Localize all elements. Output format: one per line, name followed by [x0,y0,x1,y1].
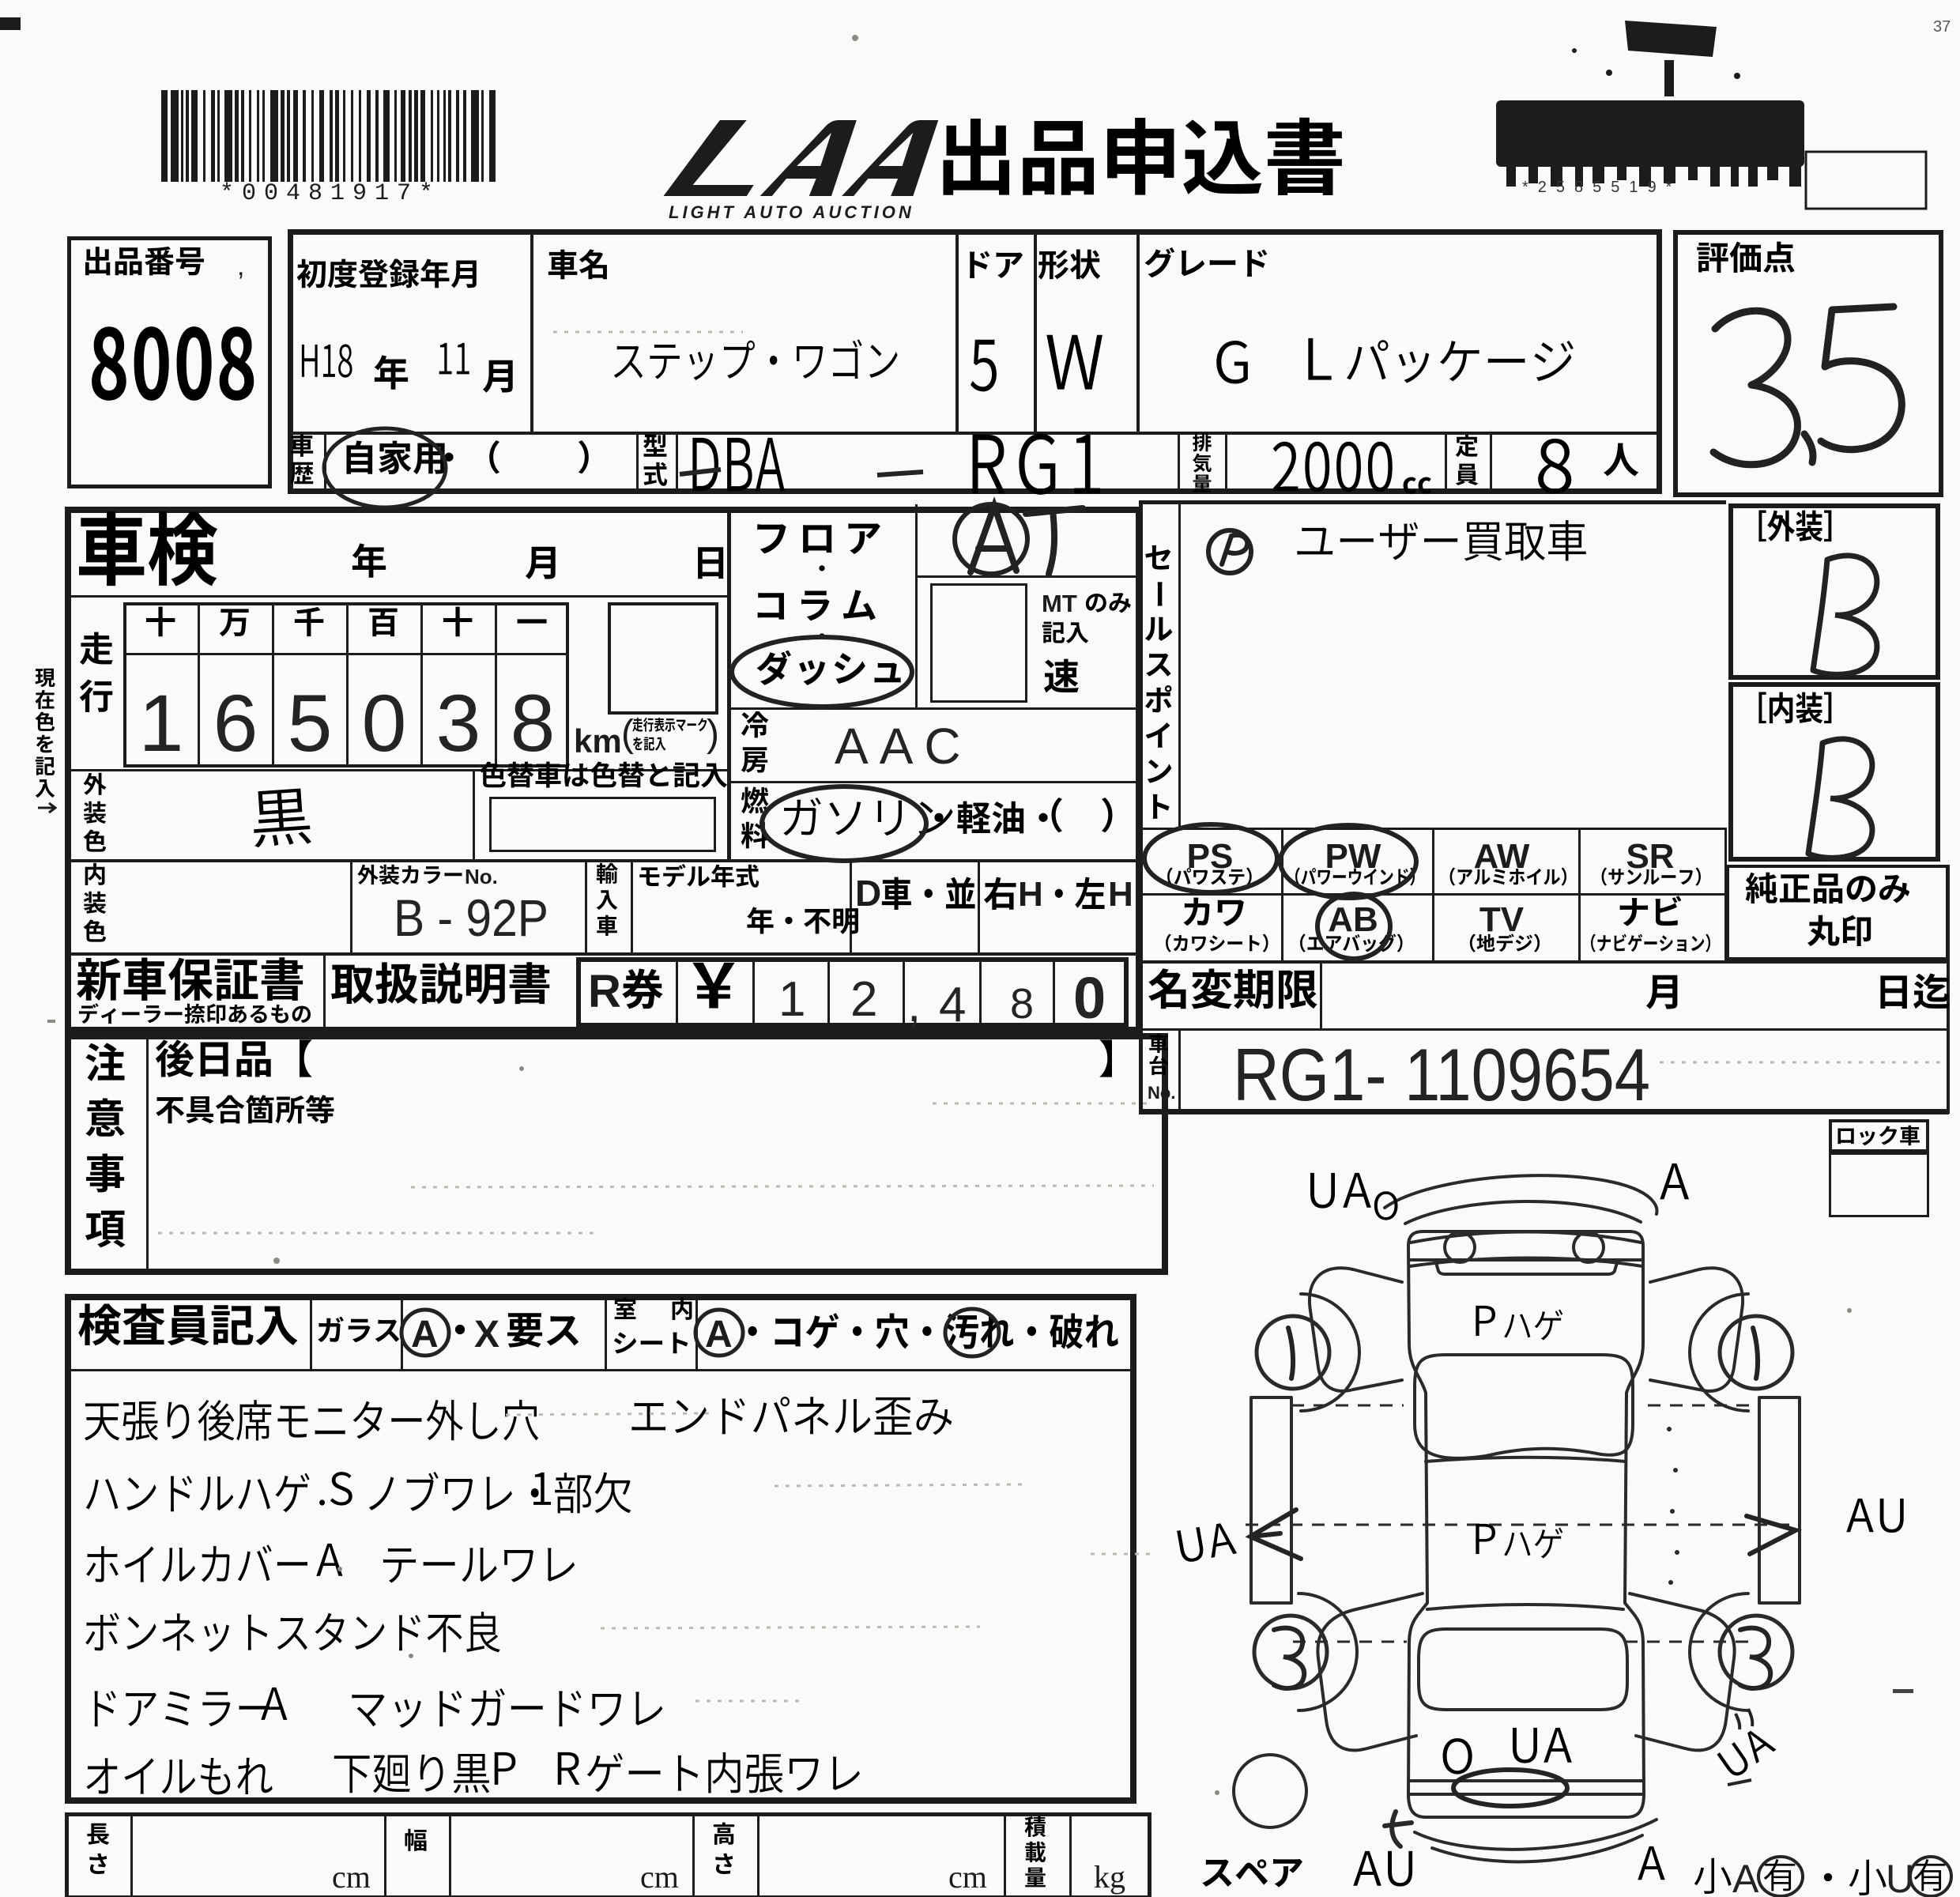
svg-text:8: 8 [511,678,556,768]
svg-text:6: 6 [213,678,258,768]
svg-text:LIGHT AUTO AUCTION: LIGHT AUTO AUCTION [669,202,914,222]
svg-text:TV: TV [1479,900,1525,939]
svg-text:AB: AB [1328,900,1378,939]
svg-text:X: X [474,1314,499,1356]
svg-text:37: 37 [1933,18,1951,36]
svg-text:H: H [1018,875,1043,914]
svg-text:AW: AW [1474,837,1530,876]
svg-text:,: , [907,978,921,1032]
svg-text:No.: No. [1148,1083,1175,1103]
svg-text:*00481917*: *00481917* [220,180,441,207]
svg-text:4: 4 [939,978,966,1032]
svg-text:,: , [237,251,244,281]
svg-text:8: 8 [1010,980,1034,1028]
svg-text:1: 1 [778,972,805,1027]
svg-text:5: 5 [288,678,333,768]
svg-text:1: 1 [139,678,184,768]
svg-text:0: 0 [1073,965,1106,1031]
svg-text:R: R [588,966,621,1017]
svg-text:No.: No. [465,865,498,888]
svg-text:cm: cm [948,1859,987,1895]
svg-text:B - 92P: B - 92P [394,888,548,947]
svg-text:3: 3 [436,678,481,768]
svg-text:kg: kg [1094,1859,1125,1895]
svg-text:H: H [1108,875,1133,914]
svg-text:*2585519*: *2585519* [1522,179,1681,196]
svg-text:PS: PS [1187,837,1234,876]
svg-text:A: A [1732,1857,1759,1897]
svg-text:AAC: AAC [835,718,972,775]
svg-text:0: 0 [362,678,407,768]
svg-text:cm: cm [332,1859,371,1895]
svg-text:MT: MT [1042,590,1077,617]
svg-text:RG1- 1109654: RG1- 1109654 [1233,1033,1650,1116]
svg-text:A: A [411,1314,439,1356]
svg-text:(: ( [621,713,634,755]
svg-text:cm: cm [640,1859,679,1895]
svg-text:SR: SR [1626,837,1674,876]
svg-text:): ) [707,713,719,755]
svg-text:A: A [705,1314,733,1356]
svg-text:2: 2 [850,972,877,1027]
svg-text:km: km [574,722,622,760]
svg-text:D: D [855,873,881,914]
svg-text:PW: PW [1325,837,1381,876]
